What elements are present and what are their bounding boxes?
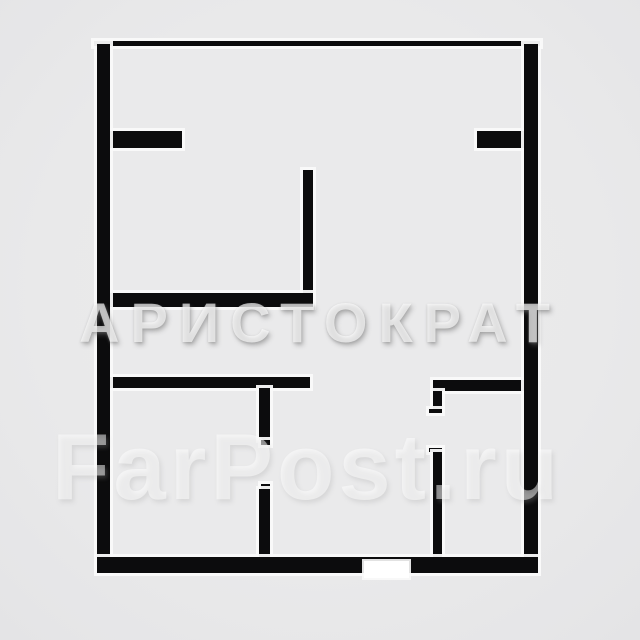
partition-vertical-lowerleft-lower — [259, 489, 270, 557]
partition-vertical-lowerright-upper — [433, 391, 442, 409]
bottom-wall-doorway-notch — [364, 561, 409, 578]
outer-wall-right — [524, 44, 538, 573]
outer-wall-left — [97, 44, 110, 573]
partition-horizontal-lower-left — [110, 377, 310, 388]
door-jamb-lowerright-top — [429, 409, 442, 413]
partition-horizontal-mid-left — [110, 293, 313, 307]
partition-vertical-lowerleft-upper — [259, 388, 270, 440]
floor-plan-image: АРИСТОКРАТ FarPost.ru — [0, 0, 640, 640]
partition-vertical-center — [303, 170, 313, 303]
door-jamb-lowerleft-top — [261, 440, 270, 445]
partition-horizontal-lowerright-top — [433, 380, 524, 391]
stub-wall-upper-right — [477, 131, 524, 148]
outer-wall-top — [94, 41, 540, 46]
stub-wall-upper-left — [110, 131, 182, 148]
outer-wall-bottom — [97, 557, 538, 573]
partition-vertical-lowerright-lower — [433, 452, 442, 557]
